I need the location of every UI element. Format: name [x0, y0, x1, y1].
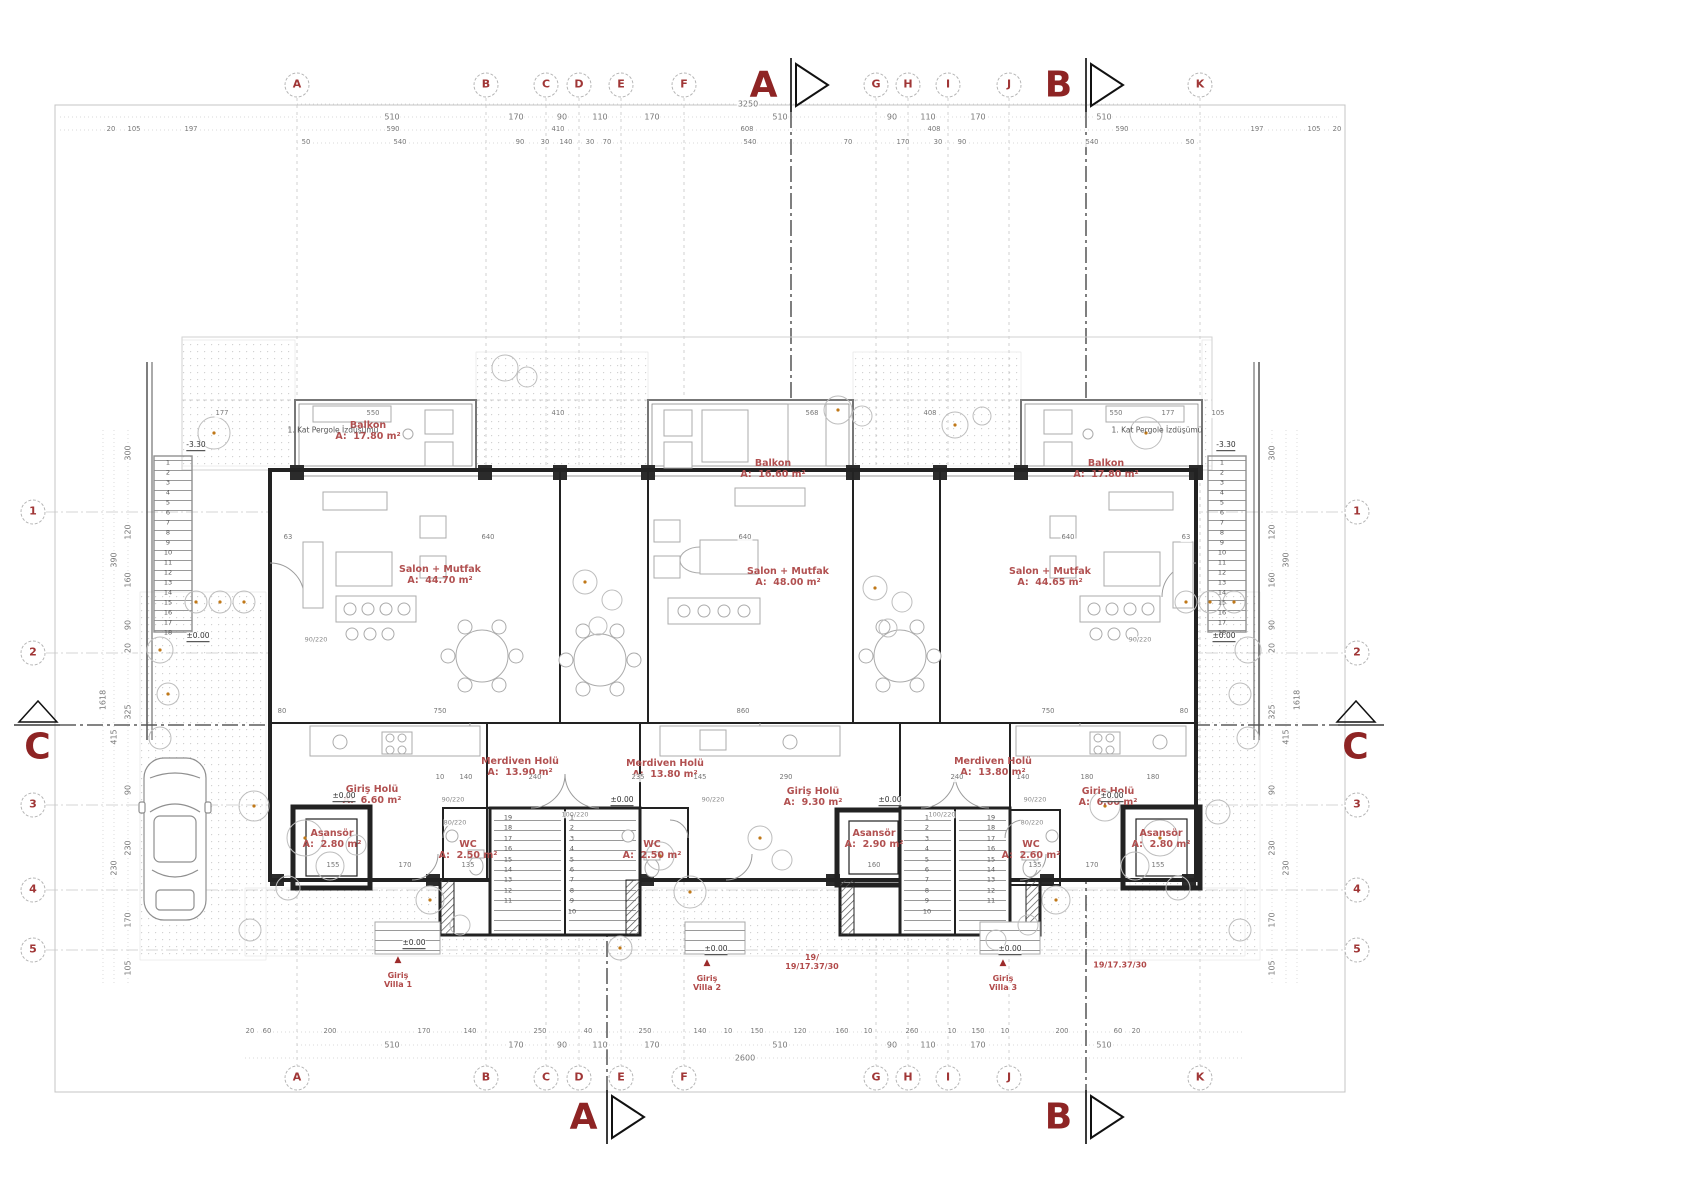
stair-tread-number: 9 — [570, 897, 574, 904]
room-label: Giriş Holü A: 9.30 m² — [784, 787, 843, 809]
entry-label: Giriş Villa 2 — [693, 974, 721, 992]
door-tag: 80/220 — [444, 819, 467, 826]
dimension-text: 410 — [551, 410, 566, 418]
dimension-text: 390 — [109, 551, 118, 568]
dimension-text: 70 — [602, 139, 613, 147]
dimension-text: 510 — [1095, 1040, 1112, 1049]
dimension-text: 170 — [507, 112, 524, 121]
dimension-text: 140 — [463, 1028, 478, 1036]
room-label: Balkon A: 17.80 m² — [1073, 459, 1138, 481]
stair-tread-number: 1 — [570, 814, 574, 821]
stair-tread-number: 11 — [164, 559, 172, 566]
dimension-text: 180 — [1146, 774, 1161, 782]
entry-triangle: ▲ — [395, 955, 402, 965]
dimension-text: 177 — [215, 410, 230, 418]
grid-column-bubble: A — [285, 73, 310, 98]
dimension-text: 170 — [969, 1040, 986, 1049]
dimension-text: 90 — [556, 1040, 568, 1049]
dimension-text: 140 — [559, 139, 574, 147]
stair-tread-number: 2 — [1220, 469, 1224, 476]
dimension-text: 90 — [886, 1040, 898, 1049]
dimension-text: 10 — [947, 1028, 958, 1036]
plan-labels: AABBCCDDEEFFGGHHIIJJKK1122334455ABABCCBa… — [0, 0, 1699, 1200]
grid-column-bubble: D — [567, 1066, 592, 1091]
stair-tread-number: 16 — [164, 609, 172, 616]
level-marker: ±0.00 — [879, 796, 902, 806]
dimension-text: 20 — [1267, 642, 1276, 654]
dimension-text: 550 — [366, 410, 381, 418]
stair-tread-number: 19 — [504, 814, 512, 821]
dimension-text: 230 — [123, 839, 132, 856]
stair-tread-number: 6 — [166, 509, 170, 516]
stair-tread-number: 5 — [925, 856, 929, 863]
stair-tread-number: 9 — [1220, 539, 1224, 546]
level-marker: ±0.00 — [1101, 792, 1124, 802]
dimension-text: 170 — [643, 112, 660, 121]
dimension-text: 550 — [1109, 410, 1124, 418]
level-marker: ±0.00 — [187, 632, 210, 642]
dimension-text: 325 — [1267, 703, 1276, 720]
stair-tread-number: 18 — [1218, 629, 1226, 636]
dimension-text: 170 — [398, 862, 413, 870]
stair-tread-number: 12 — [164, 569, 172, 576]
stair-tread-number: 12 — [1218, 569, 1226, 576]
level-marker: ±0.00 — [333, 792, 356, 802]
stair-tread-number: 14 — [1218, 589, 1226, 596]
dimension-text: 90 — [123, 619, 132, 631]
dimension-text: 750 — [1041, 708, 1056, 716]
section-marker-label: B — [1045, 64, 1073, 105]
dimension-text: 30 — [585, 139, 596, 147]
dimension-text: 140 — [459, 774, 474, 782]
dimension-text: 105 — [1307, 126, 1322, 134]
dimension-text: 510 — [383, 112, 400, 121]
dimension-text: 240 — [950, 774, 965, 782]
dimension-text: 750 — [433, 708, 448, 716]
dimension-text: 170 — [969, 112, 986, 121]
dimension-text: 90 — [556, 112, 568, 121]
dimension-text: 230 — [1281, 859, 1290, 876]
dimension-text: 240 — [528, 774, 543, 782]
dimension-text: 415 — [1281, 728, 1290, 745]
dimension-text: 540 — [1085, 139, 1100, 147]
dimension-text: 540 — [743, 139, 758, 147]
stair-tread-number: 19 — [987, 814, 995, 821]
grid-column-bubble: J — [997, 1066, 1022, 1091]
dimension-text: 510 — [383, 1040, 400, 1049]
dimension-text: 120 — [793, 1028, 808, 1036]
stair-tread-number: 7 — [570, 877, 574, 884]
dimension-text: 10 — [863, 1028, 874, 1036]
dimension-text: 90 — [515, 139, 526, 147]
stair-tread-number: 17 — [1218, 619, 1226, 626]
door-tag: 90/220 — [1024, 796, 1047, 803]
dimension-text: 170 — [507, 1040, 524, 1049]
room-label: Salon + Mutfak A: 48.00 m² — [747, 567, 829, 589]
dimension-text: 80 — [1179, 708, 1190, 716]
dimension-text: 155 — [326, 862, 341, 870]
dimension-text: 10 — [1000, 1028, 1011, 1036]
dimension-text: 170 — [417, 1028, 432, 1036]
stair-tread-number: 4 — [166, 489, 170, 496]
dimension-text: 510 — [771, 112, 788, 121]
dimension-text: 90 — [1267, 784, 1276, 796]
grid-column-bubble: I — [936, 73, 961, 98]
stair-tread-number: 13 — [1218, 579, 1226, 586]
stair-tread-number: 8 — [570, 887, 574, 894]
stair-tread-number: 8 — [166, 529, 170, 536]
stair-tread-number: 6 — [570, 866, 574, 873]
level-marker: ±0.00 — [611, 796, 634, 806]
dimension-text: 250 — [638, 1028, 653, 1036]
dimension-text: 110 — [919, 112, 936, 121]
dimension-text: 160 — [1267, 571, 1276, 588]
dimension-text: 408 — [927, 126, 942, 134]
stair-tread-number: 11 — [987, 897, 995, 904]
dimension-text: 20 — [123, 642, 132, 654]
dimension-text: 40 — [583, 1028, 594, 1036]
dimension-text: 110 — [591, 112, 608, 121]
dimension-text: 170 — [643, 1040, 660, 1049]
stair-tread-number: 5 — [1220, 499, 1224, 506]
dimension-text: 90 — [957, 139, 968, 147]
stair-tread-number: 3 — [166, 479, 170, 486]
dimension-text: 510 — [1095, 112, 1112, 121]
dimension-text: 160 — [123, 571, 132, 588]
dimension-text: 197 — [184, 126, 199, 134]
dimension-text: 2600 — [734, 1053, 756, 1062]
grid-column-bubble: B — [474, 1066, 499, 1091]
door-tag: 100/220 — [928, 811, 955, 818]
dimension-text: 200 — [323, 1028, 338, 1036]
stair-tread-number: 4 — [925, 845, 929, 852]
grid-row-bubble: 1 — [21, 500, 46, 525]
dimension-text: 860 — [736, 708, 751, 716]
door-tag: 90/220 — [442, 796, 465, 803]
dimension-text: 20 — [1332, 126, 1343, 134]
door-tag: 80/220 — [1021, 819, 1044, 826]
level-marker: ±0.00 — [705, 945, 728, 955]
section-marker-label: C — [1342, 726, 1369, 767]
grid-column-bubble: C — [534, 1066, 559, 1091]
room-label: WC A: 2.50 m² — [439, 840, 498, 862]
dimension-text: 590 — [1115, 126, 1130, 134]
stair-tread-number: 1 — [166, 459, 170, 466]
dimension-text: 150 — [971, 1028, 986, 1036]
stair-tread-number: 3 — [570, 835, 574, 842]
dimension-text: 10 — [435, 774, 446, 782]
room-label: Asansör A: 2.80 m² — [1132, 829, 1191, 851]
grid-row-bubble: 1 — [1345, 500, 1370, 525]
dimension-text: 30 — [540, 139, 551, 147]
dimension-text: 235 — [631, 774, 646, 782]
stair-tread-number: 15 — [1218, 599, 1226, 606]
stair-tread-number: 15 — [987, 856, 995, 863]
dimension-text: 80 — [277, 708, 288, 716]
dimension-text: 180 — [1080, 774, 1095, 782]
dimension-text: 300 — [1267, 444, 1276, 461]
dimension-text: 110 — [919, 1040, 936, 1049]
stair-tread-number: 18 — [504, 825, 512, 832]
grid-column-bubble: J — [997, 73, 1022, 98]
dimension-text: 160 — [835, 1028, 850, 1036]
dimension-text: 640 — [738, 534, 753, 542]
stair-tread-number: 5 — [570, 856, 574, 863]
dimension-text: 250 — [533, 1028, 548, 1036]
dimension-text: 170 — [1085, 862, 1100, 870]
stair-tread-number: 5 — [166, 499, 170, 506]
door-tag: 100/220 — [561, 811, 588, 818]
stair-tread-number: 2 — [166, 469, 170, 476]
stair-tread-number: 13 — [164, 579, 172, 586]
pergola-note: 1. Kat Pergole İzdüşümü — [1112, 427, 1203, 436]
stair-tread-number: 10 — [568, 908, 576, 915]
stair-tread-number: 3 — [925, 835, 929, 842]
stair-tread-number: 1 — [925, 814, 929, 821]
dimension-text: 230 — [1267, 839, 1276, 856]
dimension-text: 230 — [109, 859, 118, 876]
stair-tread-number: 13 — [504, 877, 512, 884]
dimension-text: 170 — [1267, 911, 1276, 928]
grid-row-bubble: 2 — [21, 641, 46, 666]
stair-tread-number: 16 — [987, 845, 995, 852]
dimension-text: 105 — [1267, 959, 1276, 976]
dimension-text: 63 — [1181, 534, 1192, 542]
dimension-text: 140 — [1016, 774, 1031, 782]
dimension-text: 105 — [127, 126, 142, 134]
grid-column-bubble: F — [672, 1066, 697, 1091]
grid-column-bubble: B — [474, 73, 499, 98]
door-tag: 90/220 — [702, 796, 725, 803]
dimension-text: 170 — [123, 911, 132, 928]
dimension-text: 120 — [1267, 523, 1276, 540]
grid-column-bubble: E — [609, 1066, 634, 1091]
dimension-text: 568 — [805, 410, 820, 418]
grid-column-bubble: C — [534, 73, 559, 98]
floor-plan-canvas: AABBCCDDEEFFGGHHIIJJKK1122334455ABABCCBa… — [0, 0, 1699, 1200]
dimension-text: 60 — [1113, 1028, 1124, 1036]
dimension-text: 60 — [262, 1028, 273, 1036]
dimension-text: 90 — [123, 784, 132, 796]
stair-calc-note: 19/ 19/17.37/30 — [785, 953, 838, 971]
stair-tread-number: 8 — [925, 887, 929, 894]
dimension-text: 3250 — [737, 99, 759, 108]
dimension-text: 415 — [109, 728, 118, 745]
stair-tread-number: 11 — [1218, 559, 1226, 566]
dimension-text: 105 — [123, 959, 132, 976]
grid-column-bubble: I — [936, 1066, 961, 1091]
dimension-text: 640 — [1061, 534, 1076, 542]
room-label: WC A: 2.60 m² — [1002, 840, 1061, 862]
dimension-text: 177 — [1161, 410, 1176, 418]
dimension-text: 608 — [740, 126, 755, 134]
dimension-text: 135 — [461, 862, 476, 870]
dimension-text: 170 — [896, 139, 911, 147]
dimension-text: 135 — [1028, 862, 1043, 870]
grid-row-bubble: 5 — [1345, 938, 1370, 963]
stair-tread-number: 17 — [164, 619, 172, 626]
stair-tread-number: 7 — [925, 877, 929, 884]
room-label: Asansör A: 2.90 m² — [845, 829, 904, 851]
dimension-text: 155 — [1151, 862, 1166, 870]
stair-tread-number: 10 — [1218, 549, 1226, 556]
dimension-text: 150 — [750, 1028, 765, 1036]
dimension-text: 50 — [1185, 139, 1196, 147]
dimension-text: 390 — [1281, 551, 1290, 568]
grid-column-bubble: G — [864, 1066, 889, 1091]
room-label: WC A: 2.50 m² — [623, 840, 682, 862]
room-label: Balkon A: 16.60 m² — [740, 459, 805, 481]
entry-label: Giriş Villa 1 — [384, 971, 412, 989]
level-marker: ±0.00 — [403, 939, 426, 949]
pergola-note: 1. Kat Pergole İzdüşümü — [288, 427, 379, 436]
grid-column-bubble: E — [609, 73, 634, 98]
stair-tread-number: 9 — [166, 539, 170, 546]
dimension-text: 50 — [301, 139, 312, 147]
room-label: Merdiven Holü A: 13.90 m² — [481, 757, 559, 779]
door-tag: 90/220 — [305, 636, 328, 643]
stair-tread-number: 9 — [925, 897, 929, 904]
dimension-text: 10 — [723, 1028, 734, 1036]
dimension-text: 140 — [693, 1028, 708, 1036]
stair-tread-number: 15 — [504, 856, 512, 863]
stair-tread-number: 10 — [923, 908, 931, 915]
dimension-text: 145 — [693, 774, 708, 782]
stair-tread-number: 2 — [570, 825, 574, 832]
dimension-text: 110 — [591, 1040, 608, 1049]
grid-column-bubble: A — [285, 1066, 310, 1091]
entry-triangle: ▲ — [1000, 958, 1007, 968]
section-marker-label: C — [24, 726, 51, 767]
stair-tread-number: 6 — [925, 866, 929, 873]
stair-tread-number: 18 — [164, 629, 172, 636]
grid-column-bubble: D — [567, 73, 592, 98]
dimension-text: 90 — [1267, 619, 1276, 631]
dimension-text: 640 — [481, 534, 496, 542]
dimension-text: 20 — [1131, 1028, 1142, 1036]
stair-tread-number: 4 — [1220, 489, 1224, 496]
dimension-text: 105 — [1211, 410, 1226, 418]
dimension-text: 70 — [843, 139, 854, 147]
stair-tread-number: 14 — [164, 589, 172, 596]
room-label: Asansör A: 2.80 m² — [303, 829, 362, 851]
dimension-text: 300 — [123, 444, 132, 461]
grid-row-bubble: 3 — [21, 793, 46, 818]
dimension-text: 1618 — [1292, 689, 1301, 711]
stair-tread-number: 17 — [987, 835, 995, 842]
dimension-text: 410 — [551, 126, 566, 134]
stair-tread-number: 17 — [504, 835, 512, 842]
section-marker-label: B — [1045, 1096, 1073, 1137]
dimension-text: 197 — [1250, 126, 1265, 134]
stair-calc-note: 19/17.37/30 — [1093, 960, 1146, 969]
stair-tread-number: 4 — [570, 845, 574, 852]
grid-column-bubble: H — [896, 1066, 921, 1091]
dimension-text: 200 — [1055, 1028, 1070, 1036]
dimension-text: 540 — [393, 139, 408, 147]
grid-column-bubble: G — [864, 73, 889, 98]
dimension-text: 120 — [123, 523, 132, 540]
dimension-text: 30 — [933, 139, 944, 147]
grid-row-bubble: 3 — [1345, 793, 1370, 818]
stair-tread-number: 6 — [1220, 509, 1224, 516]
grid-row-bubble: 4 — [1345, 878, 1370, 903]
stair-tread-number: 1 — [1220, 459, 1224, 466]
stair-tread-number: 11 — [504, 897, 512, 904]
dimension-text: 325 — [123, 703, 132, 720]
stair-tread-number: 7 — [1220, 519, 1224, 526]
stair-tread-number: 16 — [1218, 609, 1226, 616]
dimension-text: 20 — [106, 126, 117, 134]
dimension-text: 510 — [771, 1040, 788, 1049]
level-marker: ±0.00 — [999, 945, 1022, 955]
door-tag: 90/220 — [1129, 636, 1152, 643]
stair-tread-number: 10 — [164, 549, 172, 556]
dimension-text: 63 — [283, 534, 294, 542]
stair-tread-number: 16 — [504, 845, 512, 852]
stair-tread-number: 18 — [987, 825, 995, 832]
dimension-text: 90 — [886, 112, 898, 121]
stair-tread-number: 12 — [987, 887, 995, 894]
stair-tread-number: 2 — [925, 825, 929, 832]
dimension-text: 260 — [905, 1028, 920, 1036]
section-marker-label: A — [570, 1096, 599, 1137]
stair-tread-number: 12 — [504, 887, 512, 894]
dimension-text: 408 — [923, 410, 938, 418]
room-label: Salon + Mutfak A: 44.70 m² — [399, 565, 481, 587]
dimension-text: 1618 — [98, 689, 107, 711]
grid-row-bubble: 2 — [1345, 641, 1370, 666]
level-marker: -3.30 — [1216, 441, 1235, 451]
dimension-text: 20 — [245, 1028, 256, 1036]
dimension-text: 160 — [867, 862, 882, 870]
entry-triangle: ▲ — [704, 958, 711, 968]
stair-tread-number: 13 — [987, 877, 995, 884]
room-label: Salon + Mutfak A: 44.65 m² — [1009, 567, 1091, 589]
grid-row-bubble: 4 — [21, 878, 46, 903]
grid-column-bubble: K — [1188, 1066, 1213, 1091]
stair-tread-number: 8 — [1220, 529, 1224, 536]
grid-column-bubble: H — [896, 73, 921, 98]
grid-column-bubble: F — [672, 73, 697, 98]
grid-row-bubble: 5 — [21, 938, 46, 963]
dimension-text: 290 — [779, 774, 794, 782]
grid-column-bubble: K — [1188, 73, 1213, 98]
dimension-text: 590 — [386, 126, 401, 134]
level-marker: -3.30 — [186, 441, 205, 451]
stair-tread-number: 14 — [504, 866, 512, 873]
stair-tread-number: 14 — [987, 866, 995, 873]
stair-tread-number: 3 — [1220, 479, 1224, 486]
stair-tread-number: 15 — [164, 599, 172, 606]
entry-label: Giriş Villa 3 — [989, 974, 1017, 992]
stair-tread-number: 7 — [166, 519, 170, 526]
